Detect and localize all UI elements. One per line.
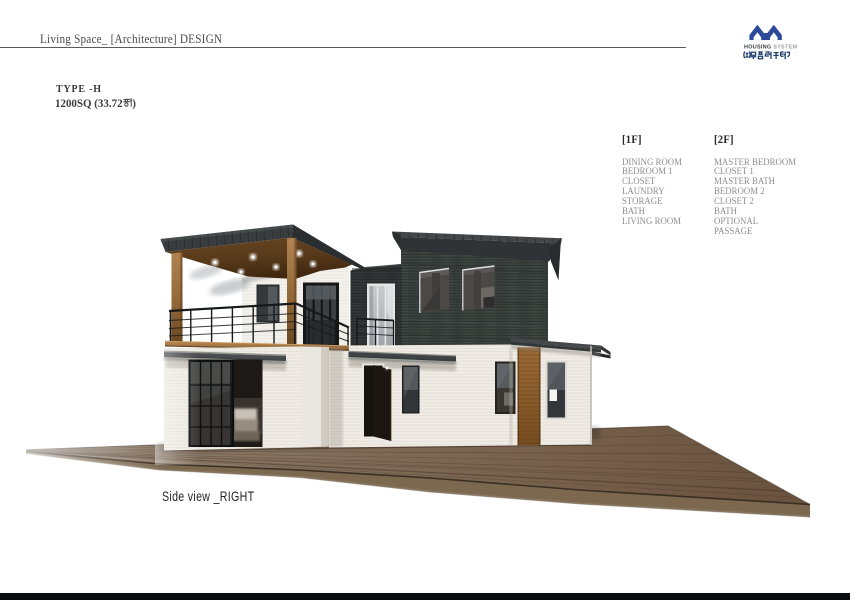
svg-text:HOUSING SYSTEM: HOUSING SYSTEM bbox=[744, 44, 797, 50]
